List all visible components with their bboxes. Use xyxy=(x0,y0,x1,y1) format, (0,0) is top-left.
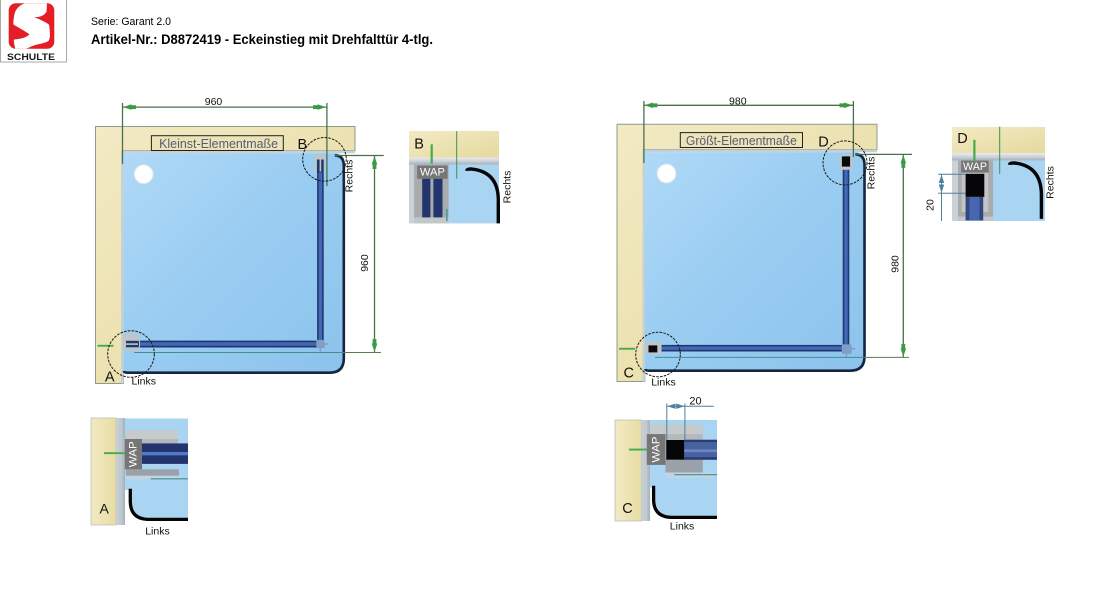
svg-text:Kleinst-Elementmaße: Kleinst-Elementmaße xyxy=(159,136,278,151)
svg-text:Serie: Garant 2.0: Serie: Garant 2.0 xyxy=(91,16,171,28)
svg-text:B: B xyxy=(414,136,424,152)
svg-text:Links: Links xyxy=(670,521,695,533)
svg-text:Artikel-Nr.: D8872419 - Eckein: Artikel-Nr.: D8872419 - Eckeinstieg mit … xyxy=(91,32,433,47)
svg-text:WAP: WAP xyxy=(128,441,140,467)
svg-text:WAP: WAP xyxy=(651,437,663,463)
svg-text:960: 960 xyxy=(205,96,223,108)
svg-text:A: A xyxy=(105,369,115,385)
svg-text:20: 20 xyxy=(689,396,701,408)
svg-text:Rechts: Rechts xyxy=(502,171,514,204)
svg-text:D: D xyxy=(957,131,967,147)
svg-text:Rechts: Rechts xyxy=(1045,166,1057,199)
svg-text:B: B xyxy=(298,137,308,153)
svg-text:20: 20 xyxy=(925,199,937,211)
svg-text:C: C xyxy=(624,366,634,382)
svg-text:A: A xyxy=(100,501,110,517)
svg-text:980: 980 xyxy=(729,95,747,107)
svg-text:Links: Links xyxy=(651,377,676,389)
svg-text:Rechts: Rechts xyxy=(866,157,878,190)
svg-text:C: C xyxy=(622,501,632,517)
svg-text:WAP: WAP xyxy=(420,167,445,179)
svg-text:D: D xyxy=(818,135,828,151)
svg-text:960: 960 xyxy=(359,254,371,272)
svg-text:SCHULTE: SCHULTE xyxy=(7,52,55,63)
svg-text:980: 980 xyxy=(890,255,902,273)
svg-text:WAP: WAP xyxy=(963,161,987,173)
svg-text:Größt-Elementmaße: Größt-Elementmaße xyxy=(686,133,797,148)
svg-text:Links: Links xyxy=(145,525,170,537)
